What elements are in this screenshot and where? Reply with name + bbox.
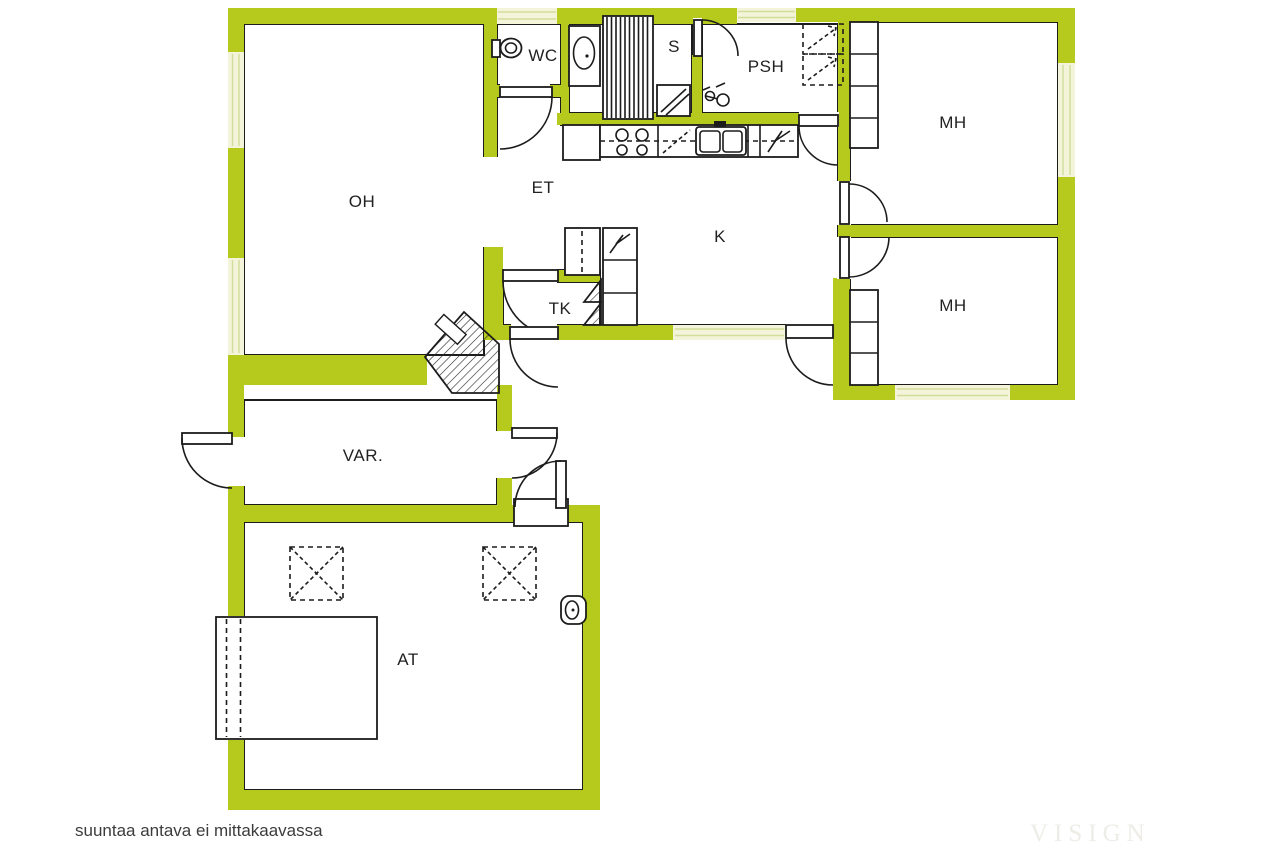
closet-mh2 (850, 290, 878, 385)
closet-mh1 (850, 22, 878, 148)
room-label-oh: OH (349, 192, 376, 212)
door-k-exterior (786, 325, 833, 385)
room-label-mh1: MH (939, 113, 966, 133)
window-above-wc (497, 8, 557, 24)
window-oh-left-upper (228, 52, 244, 148)
floorplan-canvas: OHWCSPSHMHMHETKTKVAR.AT suuntaa antava e… (0, 0, 1280, 853)
door-var-exterior (182, 433, 232, 488)
room-label-psh: PSH (748, 57, 784, 77)
kitchen-counter (563, 121, 798, 160)
room-label-wc: WC (528, 46, 557, 66)
room-label-mh2: MH (939, 296, 966, 316)
corner-cabinet (563, 125, 600, 160)
garage-sink (561, 596, 586, 624)
garage-door (216, 617, 377, 739)
scale-disclaimer: suuntaa antava ei mittakaavassa (75, 821, 323, 841)
room-label-et: ET (532, 178, 555, 198)
room-label-s: S (668, 37, 680, 57)
window-oh-left-lower (228, 258, 244, 355)
watermark: VISIGN (1030, 820, 1151, 848)
washbasin-icon (569, 26, 600, 86)
room-label-at: AT (397, 650, 418, 670)
shower-icon (657, 85, 690, 116)
room-label-k: K (714, 227, 726, 247)
window-mh2-bottom (895, 385, 1010, 400)
room-label-tk: TK (549, 299, 572, 319)
floor-plan (0, 0, 1280, 853)
door-at (514, 461, 568, 526)
kitchen-sink (696, 121, 746, 155)
door-tk-bottom (510, 327, 558, 387)
window-above-psh (737, 8, 796, 22)
window-mh1-right (1058, 63, 1075, 177)
room-oh (244, 24, 484, 355)
toilet-icon (492, 39, 522, 58)
window-k-bottom (673, 325, 786, 340)
door-var-right (512, 428, 557, 478)
room-label-var: VAR. (343, 446, 383, 466)
sauna-benches (603, 16, 653, 119)
